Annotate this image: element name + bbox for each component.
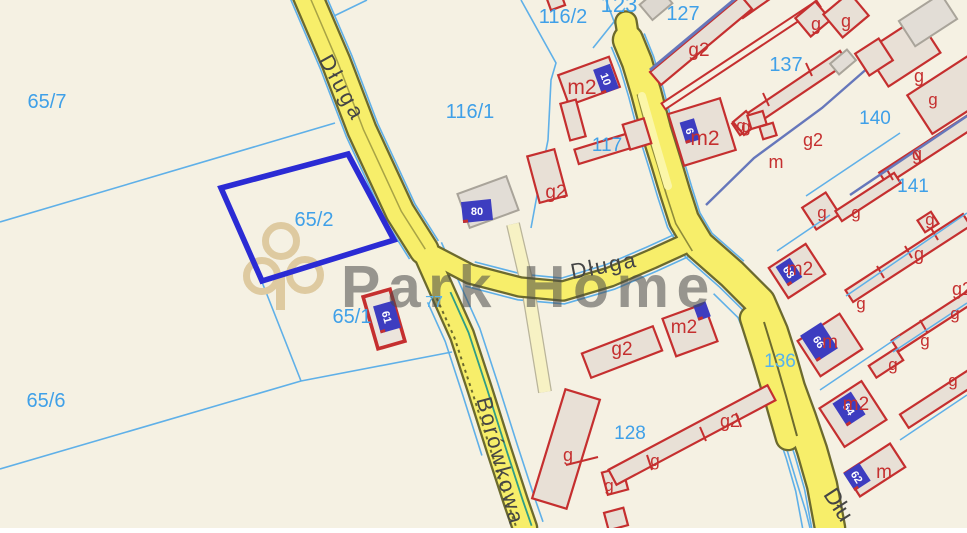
svg-text:g: g	[888, 355, 897, 374]
svg-text:80: 80	[471, 206, 483, 218]
svg-text:141: 141	[897, 176, 929, 197]
svg-text:g: g	[736, 116, 745, 135]
svg-text:140: 140	[859, 108, 891, 129]
svg-text:g: g	[817, 203, 826, 222]
svg-text:g2: g2	[952, 279, 967, 299]
svg-text:g: g	[856, 294, 865, 313]
svg-text:65/6: 65/6	[27, 390, 66, 412]
svg-text:m2: m2	[690, 127, 719, 150]
svg-text:m: m	[876, 462, 892, 483]
svg-text:g: g	[950, 304, 959, 323]
svg-text:g: g	[928, 90, 937, 109]
svg-text:g: g	[925, 210, 934, 229]
svg-text:g: g	[604, 476, 613, 495]
svg-text:g: g	[563, 445, 573, 465]
svg-text:77: 77	[425, 294, 443, 311]
svg-text:137: 137	[769, 54, 802, 76]
svg-text:116/1: 116/1	[446, 101, 495, 123]
svg-text:g: g	[841, 11, 851, 31]
svg-text:m: m	[769, 152, 784, 172]
svg-text:g2: g2	[720, 411, 740, 431]
svg-text:123: 123	[601, 0, 638, 17]
svg-text:g: g	[948, 371, 957, 390]
svg-text:g: g	[914, 66, 924, 86]
svg-text:Park Home: Park Home	[341, 254, 717, 320]
svg-text:128: 128	[614, 423, 646, 444]
svg-text:127: 127	[666, 3, 699, 25]
svg-text:m2: m2	[787, 259, 813, 280]
svg-text:m2: m2	[671, 317, 697, 338]
svg-text:g: g	[912, 144, 922, 164]
svg-text:m2: m2	[567, 76, 596, 99]
svg-text:g2: g2	[545, 182, 566, 203]
svg-text:g: g	[650, 451, 659, 470]
svg-text:65/2: 65/2	[295, 209, 334, 231]
svg-text:g2: g2	[611, 339, 632, 360]
svg-text:g: g	[851, 203, 860, 222]
svg-text:136: 136	[764, 351, 796, 372]
svg-text:g: g	[920, 331, 929, 350]
svg-text:g: g	[914, 244, 924, 264]
svg-text:g2: g2	[803, 130, 823, 150]
svg-text:g2: g2	[688, 40, 709, 61]
svg-text:m: m	[822, 332, 838, 353]
svg-text:65/7: 65/7	[28, 91, 67, 113]
svg-text:117: 117	[592, 135, 622, 156]
svg-text:65/1: 65/1	[333, 306, 372, 328]
svg-text:116/2: 116/2	[539, 6, 588, 28]
svg-text:m2: m2	[843, 394, 869, 415]
svg-text:g: g	[811, 14, 821, 34]
